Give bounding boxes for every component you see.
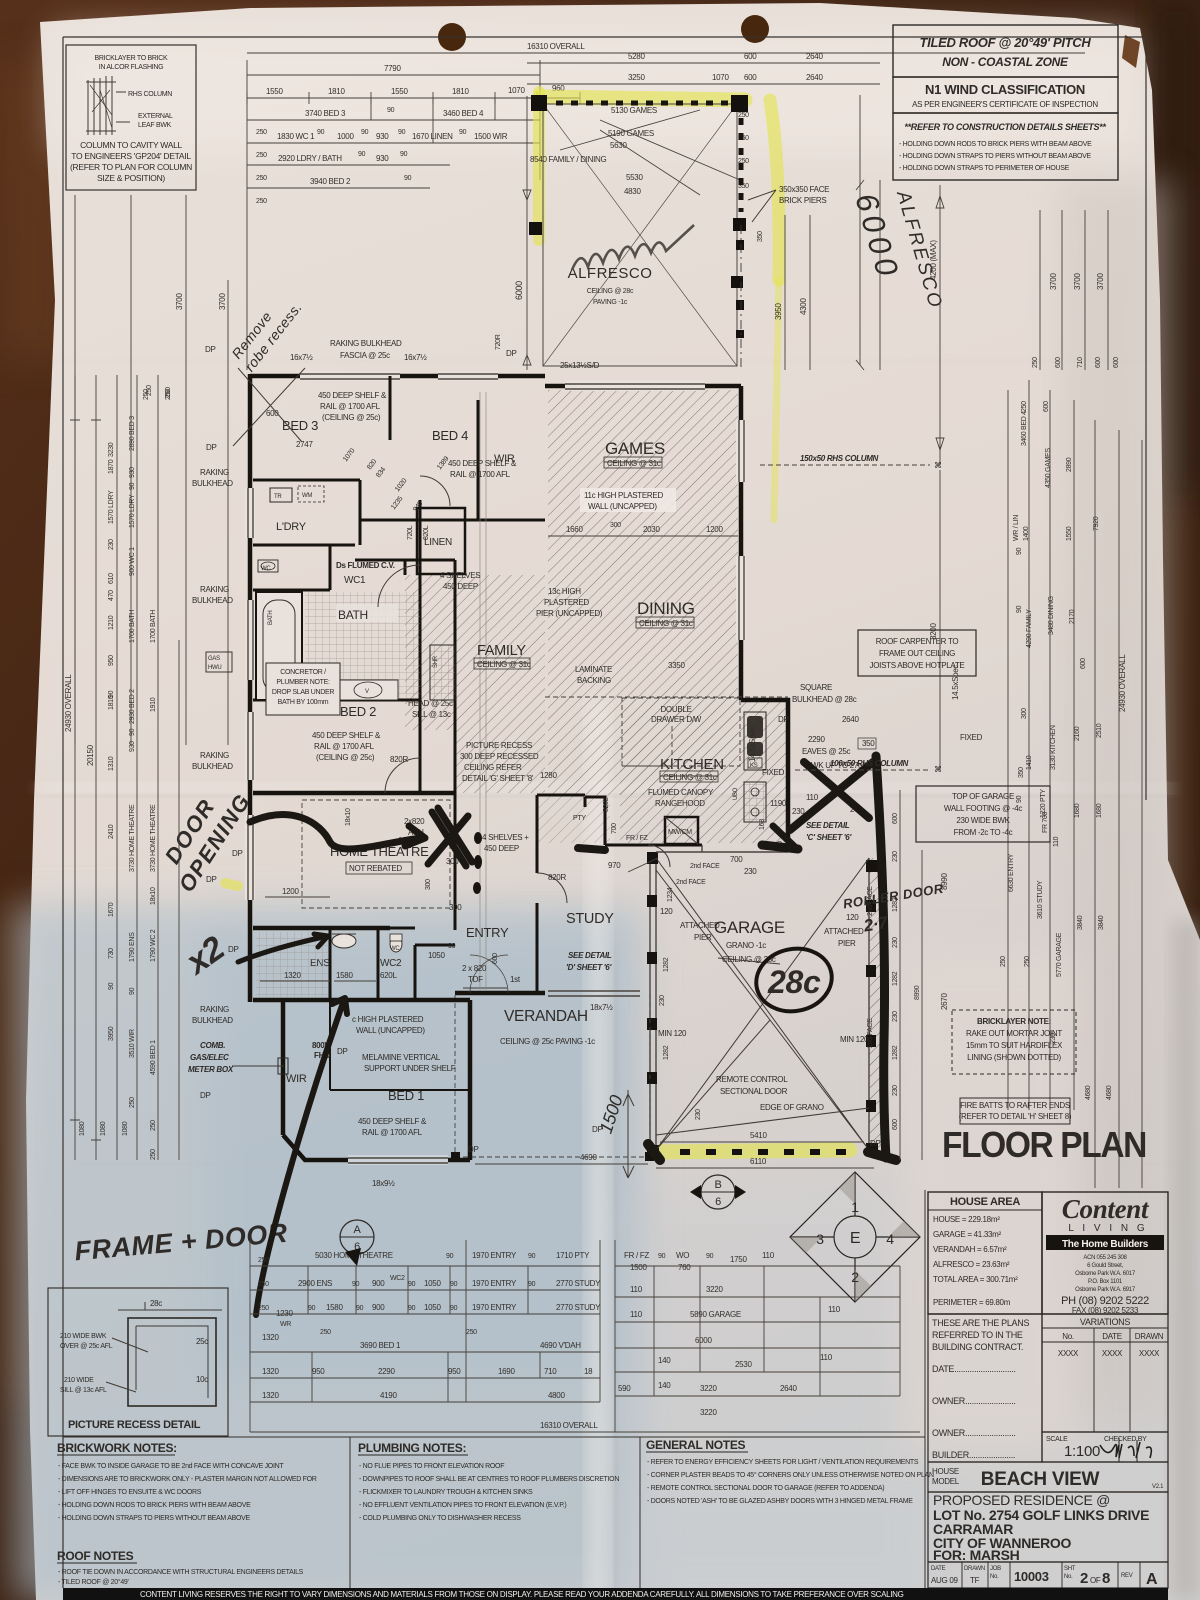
svg-text:24930 OVERALL: 24930 OVERALL xyxy=(64,674,73,732)
svg-text:820L: 820L xyxy=(423,525,430,540)
svg-text:600: 600 xyxy=(1080,658,1087,669)
svg-text:BULKHEAD: BULKHEAD xyxy=(192,479,233,488)
svg-text:1970 ENTRY: 1970 ENTRY xyxy=(472,1251,517,1260)
svg-text:10c: 10c xyxy=(196,1375,208,1384)
svg-text:PLUMBING NOTES:: PLUMBING NOTES: xyxy=(358,1441,466,1455)
svg-text:90: 90 xyxy=(404,175,412,182)
svg-text:1400: 1400 xyxy=(1023,526,1030,541)
svg-text:90: 90 xyxy=(706,1253,714,1260)
svg-text:ATTACHED: ATTACHED xyxy=(824,927,864,936)
svg-text:ATTACHED: ATTACHED xyxy=(680,921,720,930)
svg-text:A: A xyxy=(1146,1571,1158,1588)
svg-text:WALL (UNCAPPED): WALL (UNCAPPED) xyxy=(356,1026,425,1035)
svg-text:2510: 2510 xyxy=(1096,723,1103,738)
svg-text:1810: 1810 xyxy=(328,87,345,96)
svg-text:1282: 1282 xyxy=(663,957,670,972)
svg-text:1550: 1550 xyxy=(391,87,408,96)
svg-text:RAKING BULKHEAD: RAKING BULKHEAD xyxy=(330,339,402,348)
svg-text:600: 600 xyxy=(892,1119,899,1130)
svg-text:4: 4 xyxy=(886,1231,894,1247)
svg-text:6000: 6000 xyxy=(695,1336,712,1345)
svg-text:RHS COLUMN: RHS COLUMN xyxy=(128,91,172,98)
svg-text:3690 BED 1: 3690 BED 1 xyxy=(360,1341,401,1350)
svg-text:90: 90 xyxy=(450,1305,458,1312)
svg-text:7790: 7790 xyxy=(384,64,401,73)
svg-text:90: 90 xyxy=(308,1305,316,1312)
svg-text:1050: 1050 xyxy=(424,1303,441,1312)
svg-text:WC2: WC2 xyxy=(390,1275,405,1282)
svg-text:2 x 820: 2 x 820 xyxy=(462,964,487,973)
svg-text:2160: 2160 xyxy=(1074,726,1081,741)
svg-text:4190: 4190 xyxy=(380,1391,397,1400)
svg-text:250: 250 xyxy=(256,152,267,159)
svg-text:DP: DP xyxy=(778,715,789,724)
svg-text:1: 1 xyxy=(851,1199,859,1215)
svg-text:250: 250 xyxy=(256,129,267,136)
svg-text:MELAMINE VERTICAL: MELAMINE VERTICAL xyxy=(362,1053,441,1062)
svg-text:The Home Builders: The Home Builders xyxy=(1062,1239,1149,1250)
svg-text:DATE..........................: DATE............................ xyxy=(932,1364,1016,1374)
svg-text:140: 140 xyxy=(658,1356,671,1365)
svg-text:PLUMBER NOTE:: PLUMBER NOTE: xyxy=(276,679,330,686)
svg-text:6000: 6000 xyxy=(514,281,524,300)
svg-text:BULKHEAD: BULKHEAD xyxy=(192,762,233,771)
svg-text:COLUMN TO CAVITY WALL: COLUMN TO CAVITY WALL xyxy=(80,140,182,150)
svg-text:250: 250 xyxy=(1021,401,1028,412)
svg-text:VARIATIONS: VARIATIONS xyxy=(1080,1317,1130,1327)
svg-text:XXXX: XXXX xyxy=(1058,1349,1079,1358)
svg-text:RAKING: RAKING xyxy=(200,468,229,477)
svg-text:HOUSE AREA: HOUSE AREA xyxy=(950,1196,1020,1208)
svg-text:ALFRESCO = 23.63m²: ALFRESCO = 23.63m² xyxy=(933,1260,1010,1269)
svg-text:RAKING: RAKING xyxy=(200,751,229,760)
svg-text:900: 900 xyxy=(372,1279,385,1288)
svg-text:250: 250 xyxy=(258,1257,269,1264)
svg-text:350x350 FACE: 350x350 FACE xyxy=(779,185,829,194)
svg-text:4800: 4800 xyxy=(548,1391,565,1400)
svg-text:820R: 820R xyxy=(548,873,566,882)
svg-text:REV: REV xyxy=(1121,1573,1133,1579)
svg-text:GARAGE = 41.33m²: GARAGE = 41.33m² xyxy=(933,1230,1002,1239)
svg-text:GENERAL NOTES: GENERAL NOTES xyxy=(646,1438,746,1452)
svg-text:BEACH VIEW: BEACH VIEW xyxy=(981,1469,1100,1490)
svg-text:90: 90 xyxy=(387,107,395,114)
svg-text:1070: 1070 xyxy=(712,73,729,82)
svg-text:1:100: 1:100 xyxy=(1064,1443,1100,1460)
svg-text:2747: 2747 xyxy=(296,440,313,449)
svg-text:10003: 10003 xyxy=(1014,1569,1049,1584)
svg-text:1660: 1660 xyxy=(566,525,583,534)
svg-text:RAKE OUT MORTAR JOINT: RAKE OUT MORTAR JOINT xyxy=(966,1029,1062,1038)
svg-text:BRICKLAYER TO BRICK: BRICKLAYER TO BRICK xyxy=(95,55,169,62)
svg-text:A: A xyxy=(353,1224,361,1236)
svg-text:HOUSE: HOUSE xyxy=(932,1467,959,1476)
svg-text:DP: DP xyxy=(206,443,217,452)
svg-text:1700 BATH: 1700 BATH xyxy=(150,610,157,643)
svg-text:- HOLDING DOWN RODS TO BRICK P: - HOLDING DOWN RODS TO BRICK PIERS WITH … xyxy=(899,141,1092,148)
svg-text:3940 BED 2: 3940 BED 2 xyxy=(310,177,351,186)
svg-text:18x9½: 18x9½ xyxy=(372,1179,395,1188)
svg-text:250: 250 xyxy=(146,385,153,396)
svg-text:WR / LIN: WR / LIN xyxy=(1013,515,1020,541)
svg-text:700: 700 xyxy=(611,823,618,834)
svg-text:Content: Content xyxy=(1062,1194,1150,1224)
svg-text:5770 GARAGE: 5770 GARAGE xyxy=(1056,932,1063,977)
svg-text:RAIL @ 1700 AFL: RAIL @ 1700 AFL xyxy=(314,742,375,751)
svg-text:90: 90 xyxy=(528,1281,536,1288)
svg-text:3510 WIR: 3510 WIR xyxy=(129,1029,136,1058)
svg-text:JOB: JOB xyxy=(990,1566,1001,1572)
svg-text:SHT: SHT xyxy=(1064,1566,1076,1572)
svg-text:110: 110 xyxy=(828,1305,841,1314)
svg-text:730: 730 xyxy=(108,948,115,959)
svg-text:250: 250 xyxy=(150,1120,157,1131)
svg-text:RAIL @ 1700 AFL: RAIL @ 1700 AFL xyxy=(320,402,381,411)
svg-text:1210: 1210 xyxy=(108,615,115,630)
svg-text:1690: 1690 xyxy=(498,1367,515,1376)
svg-text:90: 90 xyxy=(358,151,366,158)
svg-text:PIER: PIER xyxy=(694,933,712,942)
svg-text:BATH: BATH xyxy=(268,611,274,625)
svg-text:CEILING REFER: CEILING REFER xyxy=(464,763,522,772)
svg-text:3700: 3700 xyxy=(1073,273,1082,290)
svg-text:FIXED: FIXED xyxy=(762,768,785,777)
svg-text:250: 250 xyxy=(256,175,267,182)
svg-text:168: 168 xyxy=(759,819,766,830)
svg-text:SILL @ 13c AFL: SILL @ 13c AFL xyxy=(60,1387,107,1394)
svg-text:5130 GAMES: 5130 GAMES xyxy=(611,106,657,115)
svg-text:1320: 1320 xyxy=(284,971,301,980)
svg-text:TILED ROOF @ 20°49' PITCH: TILED ROOF @ 20°49' PITCH xyxy=(920,35,1092,50)
svg-text:1320: 1320 xyxy=(262,1367,279,1376)
svg-text:1570 LDRY: 1570 LDRY xyxy=(108,490,115,524)
svg-text:6630 ENTRY: 6630 ENTRY xyxy=(1008,853,1015,892)
svg-text:8: 8 xyxy=(1102,1570,1110,1587)
svg-text:1282: 1282 xyxy=(892,971,899,986)
svg-text:CEILING @ 31c: CEILING @ 31c xyxy=(477,660,531,669)
svg-text:BED 4: BED 4 xyxy=(432,428,468,443)
svg-text:- HOLDING DOWN STRAPS TO PIERS: - HOLDING DOWN STRAPS TO PIERS WITHOUT B… xyxy=(58,1515,250,1522)
svg-text:GARAGE: GARAGE xyxy=(714,918,785,937)
svg-text:(CEILING @ 25c): (CEILING @ 25c) xyxy=(322,413,381,422)
svg-text:L I V I N G: L I V I N G xyxy=(1068,1223,1147,1234)
svg-text:KS: KS xyxy=(750,763,758,769)
svg-text:600: 600 xyxy=(744,52,757,61)
svg-text:1282: 1282 xyxy=(663,1045,670,1060)
svg-text:5410: 5410 xyxy=(750,1131,767,1140)
svg-text:SEE DETAIL: SEE DETAIL xyxy=(806,821,850,830)
svg-text:JOISTS ABOVE HOTPLATE: JOISTS ABOVE HOTPLATE xyxy=(870,661,965,670)
svg-text:350: 350 xyxy=(1018,767,1025,778)
svg-text:- TILED ROOF @ 20°49': - TILED ROOF @ 20°49' xyxy=(58,1578,129,1586)
svg-text:No.: No. xyxy=(990,1574,999,1580)
svg-text:- REMOTE CONTROL SECTIONAL DOO: - REMOTE CONTROL SECTIONAL DOOR TO GARAG… xyxy=(647,1485,884,1492)
svg-text:REMOTE CONTROL: REMOTE CONTROL xyxy=(716,1075,788,1084)
svg-text:MIN 120: MIN 120 xyxy=(658,1029,687,1038)
svg-text:1080: 1080 xyxy=(79,1121,86,1136)
svg-text:TOP OF GARAGE: TOP OF GARAGE xyxy=(952,792,1014,801)
svg-text:DRAWN: DRAWN xyxy=(964,1566,985,1572)
svg-text:6 Gould Street,: 6 Gould Street, xyxy=(1087,1263,1123,1269)
svg-text:PIER (UNCAPPED): PIER (UNCAPPED) xyxy=(536,609,603,618)
svg-text:SIZE & POSITION): SIZE & POSITION) xyxy=(97,173,165,183)
svg-text:1790 WC 2: 1790 WC 2 xyxy=(150,929,157,962)
svg-text:3460 BED 4: 3460 BED 4 xyxy=(1021,411,1028,446)
svg-text:950: 950 xyxy=(312,1367,325,1376)
svg-text:ALFRESCO: ALFRESCO xyxy=(568,265,653,282)
svg-text:350: 350 xyxy=(757,231,764,242)
svg-text:18x10: 18x10 xyxy=(150,887,157,905)
svg-text:1280: 1280 xyxy=(540,771,557,780)
svg-text:BRICKWORK NOTES:: BRICKWORK NOTES: xyxy=(57,1441,177,1455)
svg-text:OWNER.......................: OWNER....................... xyxy=(932,1396,1016,1406)
svg-text:⌘: ⌘ xyxy=(934,765,942,774)
svg-text:EAVES @ 25c: EAVES @ 25c xyxy=(802,747,851,756)
svg-text:3700: 3700 xyxy=(1049,273,1058,290)
svg-text:600: 600 xyxy=(1043,401,1050,412)
svg-text:18x7½: 18x7½ xyxy=(590,1003,613,1012)
svg-text:8540 FAMILY / DINING: 8540 FAMILY / DINING xyxy=(530,155,606,164)
svg-text:11c HIGH PLASTERED: 11c HIGH PLASTERED xyxy=(584,491,663,500)
svg-text:PIER: PIER xyxy=(838,939,856,948)
svg-text:14.5xSpec.: 14.5xSpec. xyxy=(748,725,757,762)
svg-text:MW/CM: MW/CM xyxy=(668,829,692,836)
svg-text:2030: 2030 xyxy=(643,525,660,534)
svg-text:250: 250 xyxy=(466,1329,477,1336)
svg-text:DATE: DATE xyxy=(931,1566,946,1572)
svg-text:3220: 3220 xyxy=(706,1285,723,1294)
svg-text:110: 110 xyxy=(820,1353,833,1362)
svg-text:REFERRED TO IN THE: REFERRED TO IN THE xyxy=(932,1330,1023,1340)
svg-text:⌘: ⌘ xyxy=(934,461,942,470)
svg-text:3130 KITCHEN: 3130 KITCHEN xyxy=(1050,725,1057,770)
svg-text:300: 300 xyxy=(610,522,621,529)
svg-text:250: 250 xyxy=(256,198,267,205)
svg-text:16310 OVERALL: 16310 OVERALL xyxy=(527,42,585,51)
svg-text:- CORNER PLASTER BEADS TO 45°: - CORNER PLASTER BEADS TO 45° CORNERS ON… xyxy=(647,1471,934,1479)
svg-text:BRICKLAYER NOTE:: BRICKLAYER NOTE: xyxy=(977,1017,1051,1026)
svg-text:ACN 055 245 308: ACN 055 245 308 xyxy=(1083,1255,1127,1261)
svg-text:3230: 3230 xyxy=(108,442,115,457)
svg-text:- LIFT OFF HINGES TO ENSUITE &: - LIFT OFF HINGES TO ENSUITE & WC DOORS xyxy=(58,1489,202,1496)
svg-text:DP: DP xyxy=(205,345,216,354)
svg-text:STUDY: STUDY xyxy=(566,911,614,927)
svg-text:930: 930 xyxy=(376,132,389,141)
svg-text:600: 600 xyxy=(492,953,499,964)
svg-text:1700 BATH: 1700 BATH xyxy=(129,610,136,643)
svg-text:FOR: MARSH: FOR: MARSH xyxy=(933,1547,1020,1563)
svg-text:c HIGH PLASTERED: c HIGH PLASTERED xyxy=(352,1015,424,1024)
svg-text:1580: 1580 xyxy=(326,1303,343,1312)
svg-text:DOUBLE: DOUBLE xyxy=(660,705,691,714)
svg-text:970: 970 xyxy=(608,861,621,870)
svg-text:CEILING @ 31c: CEILING @ 31c xyxy=(607,459,661,468)
svg-text:1070: 1070 xyxy=(508,86,525,95)
svg-text:(REFER TO PLAN FOR COLUMN: (REFER TO PLAN FOR COLUMN xyxy=(70,162,192,172)
svg-text:4690 V'DAH: 4690 V'DAH xyxy=(540,1341,581,1350)
svg-text:AUG 09: AUG 09 xyxy=(931,1576,959,1585)
svg-text:3840: 3840 xyxy=(1098,915,1105,930)
svg-text:CEILING @ 28c: CEILING @ 28c xyxy=(587,288,634,295)
svg-text:3700: 3700 xyxy=(175,293,184,310)
svg-text:6: 6 xyxy=(715,1196,721,1208)
svg-text:OF: OF xyxy=(1090,1576,1101,1585)
svg-text:3700: 3700 xyxy=(1096,273,1105,290)
svg-text:No.: No. xyxy=(1064,1574,1073,1580)
svg-text:BATH BY 100mm: BATH BY 100mm xyxy=(278,699,329,706)
svg-text:600: 600 xyxy=(1095,357,1102,368)
svg-text:PICTURE RECESS DETAIL: PICTURE RECESS DETAIL xyxy=(68,1419,201,1431)
svg-text:1870: 1870 xyxy=(108,459,115,474)
svg-text:90: 90 xyxy=(658,1253,666,1260)
svg-text:590: 590 xyxy=(618,1384,631,1393)
svg-text:2890 BED 3: 2890 BED 3 xyxy=(129,416,136,451)
svg-text:NOT REBATED: NOT REBATED xyxy=(349,864,402,873)
svg-text:- HOLDING DOWN STRAPS TO PERIM: - HOLDING DOWN STRAPS TO PERIMETER OF HO… xyxy=(899,165,1070,172)
svg-text:FLOOR PLAN: FLOOR PLAN xyxy=(942,1124,1146,1165)
svg-text:3840: 3840 xyxy=(1077,915,1084,930)
svg-text:E: E xyxy=(850,1230,860,1247)
svg-text:**REFER TO CONSTRUCTION DETAIL: **REFER TO CONSTRUCTION DETAILS SHEETS** xyxy=(904,122,1106,132)
svg-text:1320: 1320 xyxy=(262,1333,279,1342)
svg-text:1230: 1230 xyxy=(276,1309,293,1318)
svg-text:SUPPORT UNDER SHELF: SUPPORT UNDER SHELF xyxy=(364,1064,456,1073)
svg-text:90: 90 xyxy=(361,129,369,136)
svg-text:1710 PTY: 1710 PTY xyxy=(556,1251,590,1260)
svg-text:90: 90 xyxy=(448,943,456,950)
svg-text:1570 LDRY: 1570 LDRY xyxy=(129,494,136,528)
svg-text:Ds FLUMED C.V.: Ds FLUMED C.V. xyxy=(336,561,395,570)
svg-text:'C' SHEET '6': 'C' SHEET '6' xyxy=(806,833,852,842)
svg-text:- NO FLUE PIPES TO FRONT ELEVA: - NO FLUE PIPES TO FRONT ELEVATION ROOF xyxy=(359,1463,504,1470)
svg-text:- COLD PLUMBING ONLY TO DISHWA: - COLD PLUMBING ONLY TO DISHWASHER RECES… xyxy=(359,1515,521,1522)
svg-text:FR / FZ: FR / FZ xyxy=(626,835,649,842)
svg-text:XXXX: XXXX xyxy=(1139,1349,1160,1358)
svg-text:24930 OVERALL: 24930 OVERALL xyxy=(1118,654,1127,712)
svg-text:CEILING @ 25c PAVING -1c: CEILING @ 25c PAVING -1c xyxy=(500,1037,595,1046)
svg-text:1282: 1282 xyxy=(892,1045,899,1060)
svg-text:SCALE: SCALE xyxy=(1046,1436,1068,1443)
svg-text:230: 230 xyxy=(744,867,757,876)
svg-text:2: 2 xyxy=(851,1269,859,1285)
svg-text:3480 DINING: 3480 DINING xyxy=(1048,596,1055,635)
svg-text:(REFER TO DETAIL 'H' SHEET 8): (REFER TO DETAIL 'H' SHEET 8) xyxy=(959,1112,1072,1121)
svg-text:1580: 1580 xyxy=(336,971,353,980)
svg-text:CEILING @ 31c: CEILING @ 31c xyxy=(663,773,717,782)
svg-text:90: 90 xyxy=(408,1281,416,1288)
svg-text:WALL (UNCAPPED): WALL (UNCAPPED) xyxy=(588,502,657,511)
svg-text:110: 110 xyxy=(806,793,819,802)
svg-text:FAMILY: FAMILY xyxy=(477,643,526,659)
svg-text:3: 3 xyxy=(816,1231,824,1247)
svg-text:450 DEEP: 450 DEEP xyxy=(484,844,519,853)
svg-text:L'DRY: L'DRY xyxy=(276,521,307,533)
svg-text:1200: 1200 xyxy=(706,525,723,534)
svg-text:FIRE BATTS TO RAFTER ENDS: FIRE BATTS TO RAFTER ENDS xyxy=(960,1101,1070,1110)
svg-text:BUILDING CONTRACT.: BUILDING CONTRACT. xyxy=(932,1342,1023,1352)
svg-text:WIR: WIR xyxy=(286,1073,307,1085)
svg-text:450 DEEP SHELF &: 450 DEEP SHELF & xyxy=(318,391,387,400)
svg-text:600: 600 xyxy=(744,73,757,82)
svg-text:90: 90 xyxy=(450,1281,458,1288)
svg-text:PTY: PTY xyxy=(573,815,586,822)
svg-text:BULKHEAD @ 28c: BULKHEAD @ 28c xyxy=(792,695,857,704)
svg-text:2nd FACE: 2nd FACE xyxy=(690,863,720,870)
svg-text:720L: 720L xyxy=(407,525,414,540)
svg-text:FRAME OUT CEILING: FRAME OUT CEILING xyxy=(879,649,955,658)
svg-text:820L: 820L xyxy=(603,797,610,812)
svg-text:28c: 28c xyxy=(150,1299,162,1308)
svg-text:CONCRETOR /: CONCRETOR / xyxy=(280,669,326,676)
svg-text:1810: 1810 xyxy=(452,87,469,96)
svg-text:90: 90 xyxy=(1016,547,1023,555)
svg-text:KITCHEN: KITCHEN xyxy=(660,756,724,773)
svg-text:300 DEEP RECESSED: 300 DEEP RECESSED xyxy=(460,752,539,761)
svg-text:TO ENGINEERS 'GP204' DETAIL: TO ENGINEERS 'GP204' DETAIL xyxy=(71,151,191,161)
svg-text:Osborne Park W.A. 6917: Osborne Park W.A. 6917 xyxy=(1075,1287,1136,1293)
svg-text:450 DEEP SHELF &: 450 DEEP SHELF & xyxy=(312,731,381,740)
svg-text:90: 90 xyxy=(108,982,115,990)
svg-text:16x7½: 16x7½ xyxy=(404,353,427,362)
svg-text:WM: WM xyxy=(302,493,312,499)
svg-text:600: 600 xyxy=(1113,357,1120,368)
svg-text:SILL @ 13c: SILL @ 13c xyxy=(412,710,451,719)
svg-text:620L: 620L xyxy=(380,971,397,980)
svg-text:230 WIDE BWK: 230 WIDE BWK xyxy=(956,816,1010,825)
svg-text:HEAD @ 25c: HEAD @ 25c xyxy=(408,699,453,708)
svg-text:250: 250 xyxy=(738,112,749,119)
svg-text:3700: 3700 xyxy=(218,293,227,310)
svg-text:140: 140 xyxy=(658,1381,671,1390)
svg-text:FASCIA @ 25c: FASCIA @ 25c xyxy=(340,351,390,360)
svg-text:4680: 4680 xyxy=(1085,1085,1092,1100)
svg-text:710: 710 xyxy=(1077,357,1084,368)
svg-text:SHR: SHR xyxy=(433,655,439,668)
svg-text:2290: 2290 xyxy=(378,1367,395,1376)
svg-text:4290 FAMILY: 4290 FAMILY xyxy=(1026,609,1033,648)
svg-text:1080: 1080 xyxy=(100,1121,107,1136)
svg-text:BULKHEAD: BULKHEAD xyxy=(192,1016,233,1025)
svg-text:- HOLDING DOWN STRAPS TO PIERS: - HOLDING DOWN STRAPS TO PIERS WITHOUT B… xyxy=(899,153,1091,160)
svg-text:3220: 3220 xyxy=(700,1384,717,1393)
svg-text:DP: DP xyxy=(337,1047,348,1056)
svg-text:120: 120 xyxy=(660,907,673,916)
svg-text:- NO EFFLUENT VENTILATION PIPE: - NO EFFLUENT VENTILATION PIPES TO FRONT… xyxy=(359,1502,566,1509)
svg-text:7920: 7920 xyxy=(1093,516,1100,531)
svg-text:250: 250 xyxy=(129,1097,136,1108)
svg-text:90: 90 xyxy=(459,129,467,136)
svg-text:VERANDAH: VERANDAH xyxy=(504,1008,588,1025)
svg-text:90: 90 xyxy=(129,482,136,490)
svg-text:RAKING: RAKING xyxy=(200,1005,229,1014)
svg-text:No.: No. xyxy=(1062,1332,1074,1341)
svg-text:1320: 1320 xyxy=(262,1391,279,1400)
svg-text:20150: 20150 xyxy=(86,744,95,766)
svg-text:MIN 120: MIN 120 xyxy=(840,1035,869,1044)
svg-text:110: 110 xyxy=(1053,836,1060,847)
svg-text:TDF: TDF xyxy=(468,975,483,984)
svg-text:THESE ARE THE PLANS: THESE ARE THE PLANS xyxy=(932,1318,1029,1328)
svg-text:8990: 8990 xyxy=(940,873,949,890)
svg-text:ENTRY: ENTRY xyxy=(466,925,509,940)
svg-text:TOTAL AREA = 300.71m²: TOTAL AREA = 300.71m² xyxy=(933,1275,1018,1284)
svg-text:WR: WR xyxy=(280,1321,291,1328)
svg-text:BED 1: BED 1 xyxy=(388,1088,424,1103)
svg-text:GAS: GAS xyxy=(208,656,220,662)
svg-text:PAVING -1c: PAVING -1c xyxy=(593,299,628,306)
svg-text:2930 BED 2: 2930 BED 2 xyxy=(129,689,136,724)
svg-text:WC: WC xyxy=(390,946,400,952)
